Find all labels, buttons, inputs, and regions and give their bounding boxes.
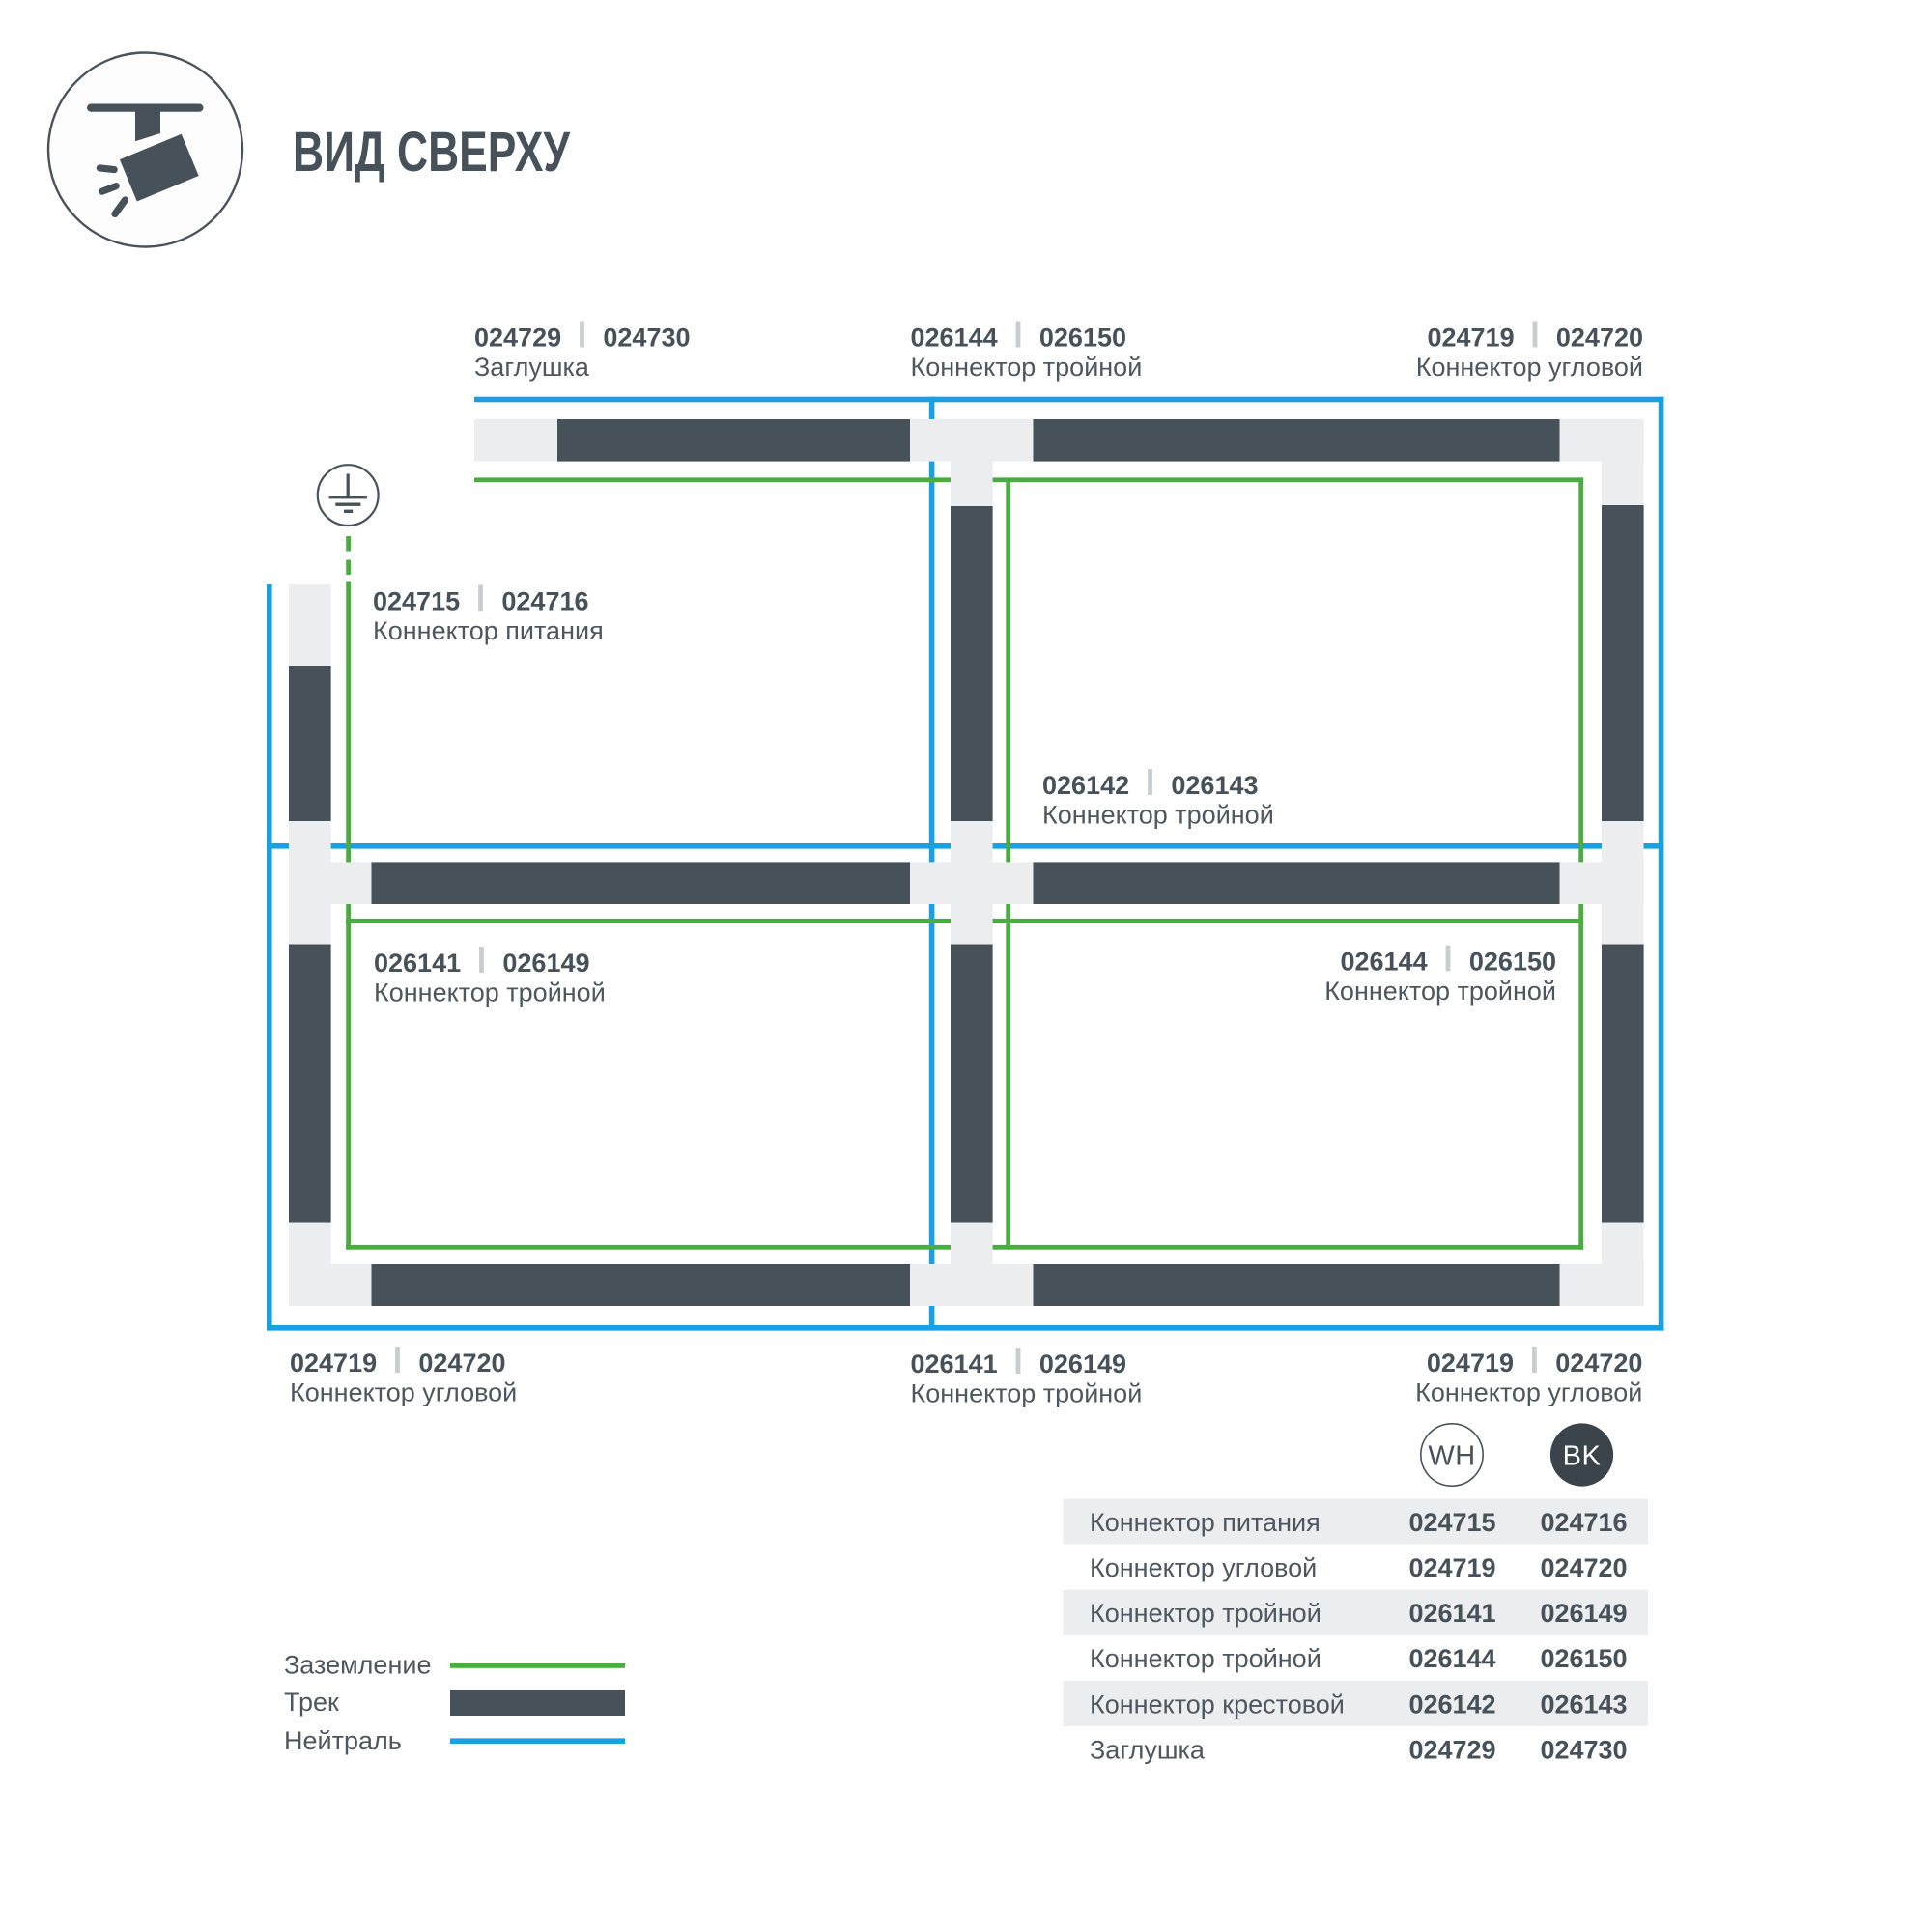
svg-text:026141: 026141	[1408, 1599, 1495, 1628]
svg-text:024730: 024730	[603, 324, 690, 353]
svg-text:024729: 024729	[1408, 1735, 1495, 1764]
svg-text:024729: 024729	[474, 324, 561, 353]
svg-text:026143: 026143	[1540, 1690, 1627, 1719]
svg-text:026149: 026149	[502, 949, 589, 978]
svg-text:024716: 024716	[501, 587, 588, 616]
svg-text:024720: 024720	[1556, 324, 1643, 353]
svg-text:024720: 024720	[1540, 1553, 1627, 1582]
svg-text:026144: 026144	[1340, 948, 1427, 977]
svg-text:024719: 024719	[1427, 324, 1514, 353]
svg-text:026149: 026149	[1540, 1599, 1627, 1628]
svg-text:Заземление: Заземление	[284, 1651, 431, 1680]
svg-text:Нейтраль: Нейтраль	[284, 1726, 402, 1755]
svg-text:Трек: Трек	[284, 1688, 339, 1717]
svg-text:Коннектор тройной: Коннектор тройной	[1090, 1599, 1321, 1628]
svg-text:WH: WH	[1428, 1441, 1475, 1472]
svg-text:024720: 024720	[418, 1349, 505, 1378]
svg-text:024715: 024715	[373, 587, 460, 616]
svg-text:026142: 026142	[1042, 771, 1129, 800]
svg-text:024720: 024720	[1555, 1349, 1642, 1378]
svg-text:026141: 026141	[911, 1350, 998, 1378]
svg-text:Коннектор угловой: Коннектор угловой	[1415, 1378, 1642, 1407]
svg-text:026144: 026144	[1408, 1644, 1495, 1673]
svg-text:Коннектор угловой: Коннектор угловой	[1416, 353, 1643, 382]
svg-text:026144: 026144	[911, 324, 998, 353]
svg-text:Коннектор тройной: Коннектор тройной	[911, 353, 1143, 382]
svg-text:Заглушка: Заглушка	[474, 353, 590, 382]
svg-text:026143: 026143	[1171, 771, 1258, 800]
svg-text:024719: 024719	[1408, 1553, 1495, 1582]
svg-text:Коннектор тройной: Коннектор тройной	[1090, 1644, 1321, 1673]
svg-text:026150: 026150	[1540, 1644, 1627, 1673]
svg-text:Коннектор крестовой: Коннектор крестовой	[1090, 1690, 1345, 1719]
svg-text:024719: 024719	[1427, 1349, 1514, 1378]
svg-text:024716: 024716	[1540, 1508, 1627, 1537]
svg-text:ВИД СВЕРХУ: ВИД СВЕРХУ	[293, 121, 571, 184]
svg-text:Коннектор угловой: Коннектор угловой	[1090, 1553, 1317, 1582]
svg-text:Коннектор угловой: Коннектор угловой	[290, 1378, 517, 1407]
svg-text:Коннектор тройной: Коннектор тройной	[374, 979, 606, 1008]
svg-text:Коннектор тройной: Коннектор тройной	[1324, 977, 1556, 1006]
svg-text:Коннектор тройной: Коннектор тройной	[911, 1379, 1143, 1408]
svg-text:Коннектор питания: Коннектор питания	[1090, 1508, 1321, 1537]
svg-text:024730: 024730	[1540, 1735, 1627, 1764]
svg-text:024719: 024719	[290, 1349, 377, 1378]
svg-text:Заглушка: Заглушка	[1090, 1735, 1206, 1764]
svg-text:026142: 026142	[1408, 1690, 1495, 1719]
svg-text:026150: 026150	[1039, 324, 1126, 353]
svg-text:026141: 026141	[374, 949, 461, 978]
svg-text:BK: BK	[1563, 1441, 1602, 1472]
svg-text:Коннектор питания: Коннектор питания	[373, 616, 604, 645]
svg-text:026150: 026150	[1469, 948, 1556, 977]
svg-text:Коннектор тройной: Коннектор тройной	[1042, 801, 1274, 830]
svg-text:026149: 026149	[1039, 1350, 1126, 1378]
svg-text:024715: 024715	[1408, 1508, 1495, 1537]
